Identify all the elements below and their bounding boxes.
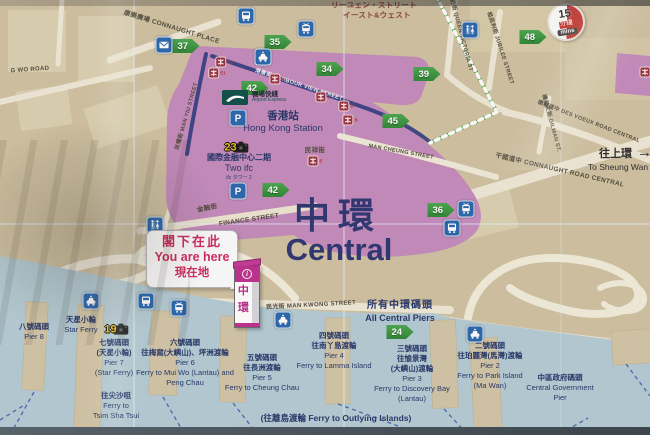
pillar-info-band: i bbox=[235, 266, 259, 282]
station-label-en: Hong Kong Station bbox=[243, 123, 323, 134]
pillar-char-2: 環 bbox=[235, 300, 252, 317]
panel-seam bbox=[133, 0, 135, 435]
map-photo: P bbox=[0, 0, 650, 435]
you-are-here-jp: 現在地 bbox=[147, 266, 237, 280]
you-are-here-en: You are here bbox=[147, 250, 237, 266]
station-label-zh: 香港站 bbox=[243, 108, 323, 123]
all-piers-en: All Central Piers bbox=[365, 313, 435, 324]
all-central-piers-label: 所有中環碼頭 All Central Piers bbox=[365, 300, 435, 324]
sheung-wan-zh: 往上環 bbox=[599, 145, 632, 161]
two-ifc-jp: ifc タワー 2 bbox=[207, 175, 271, 182]
two-ifc-label: 國際金融中心二期 Two ifc ifc タワー 2 bbox=[207, 153, 271, 182]
you-are-here-zh: 閣下在此 bbox=[147, 234, 237, 250]
airport-express-en: Airport Express bbox=[252, 98, 286, 104]
all-piers-zh: 所有中環碼頭 bbox=[365, 300, 435, 313]
two-ifc-zh: 國際金融中心二期 bbox=[207, 153, 271, 163]
pillar-foot bbox=[235, 323, 259, 327]
airport-express-logo: 機場快綫 Airport Express bbox=[222, 90, 286, 105]
airport-express-icon bbox=[222, 90, 248, 105]
panel-seam bbox=[560, 0, 562, 435]
hong-kong-station-label: 香港站 Hong Kong Station bbox=[243, 108, 323, 134]
to-sheung-wan-label: 往上環 → To Sheung Wan bbox=[584, 144, 650, 172]
info-icon: i bbox=[242, 269, 252, 279]
pillar-char-1: 中 bbox=[235, 283, 252, 300]
photo-bottom-edge bbox=[0, 427, 650, 435]
two-ifc-en: Two ifc bbox=[207, 163, 271, 175]
you-are-here-pillar-marker: i 中 環 bbox=[234, 265, 260, 328]
arrow-right-icon: → bbox=[637, 144, 650, 161]
district-title-en: Central bbox=[286, 232, 393, 268]
you-are-here-bubble: 閣下在此 You are here 現在地 bbox=[146, 230, 238, 288]
sheung-wan-en: To Sheung Wan bbox=[584, 162, 650, 172]
